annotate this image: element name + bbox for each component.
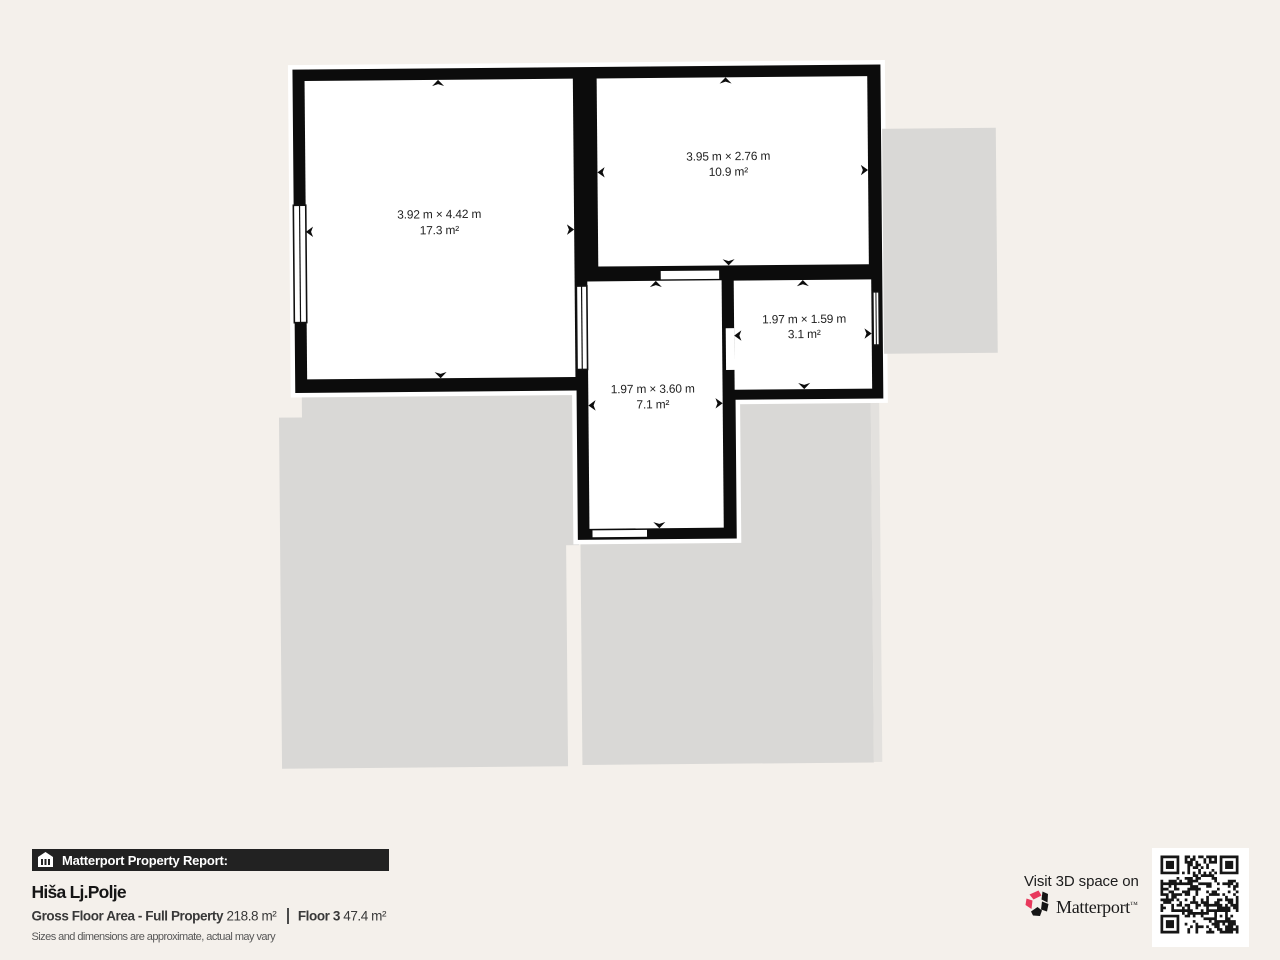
svg-text:17.3 m²: 17.3 m²: [420, 223, 460, 237]
svg-text:10.9 m²: 10.9 m²: [709, 165, 749, 179]
svg-text:1.97 m × 3.60 m: 1.97 m × 3.60 m: [611, 382, 695, 397]
svg-text:3.1 m²: 3.1 m²: [788, 327, 821, 341]
svg-text:3.95 m × 2.76 m: 3.95 m × 2.76 m: [686, 149, 770, 164]
svg-text:3.92 m × 4.42 m: 3.92 m × 4.42 m: [397, 207, 481, 222]
svg-text:7.1 m²: 7.1 m²: [636, 397, 669, 411]
svg-text:1.97 m × 1.59 m: 1.97 m × 1.59 m: [762, 312, 846, 327]
